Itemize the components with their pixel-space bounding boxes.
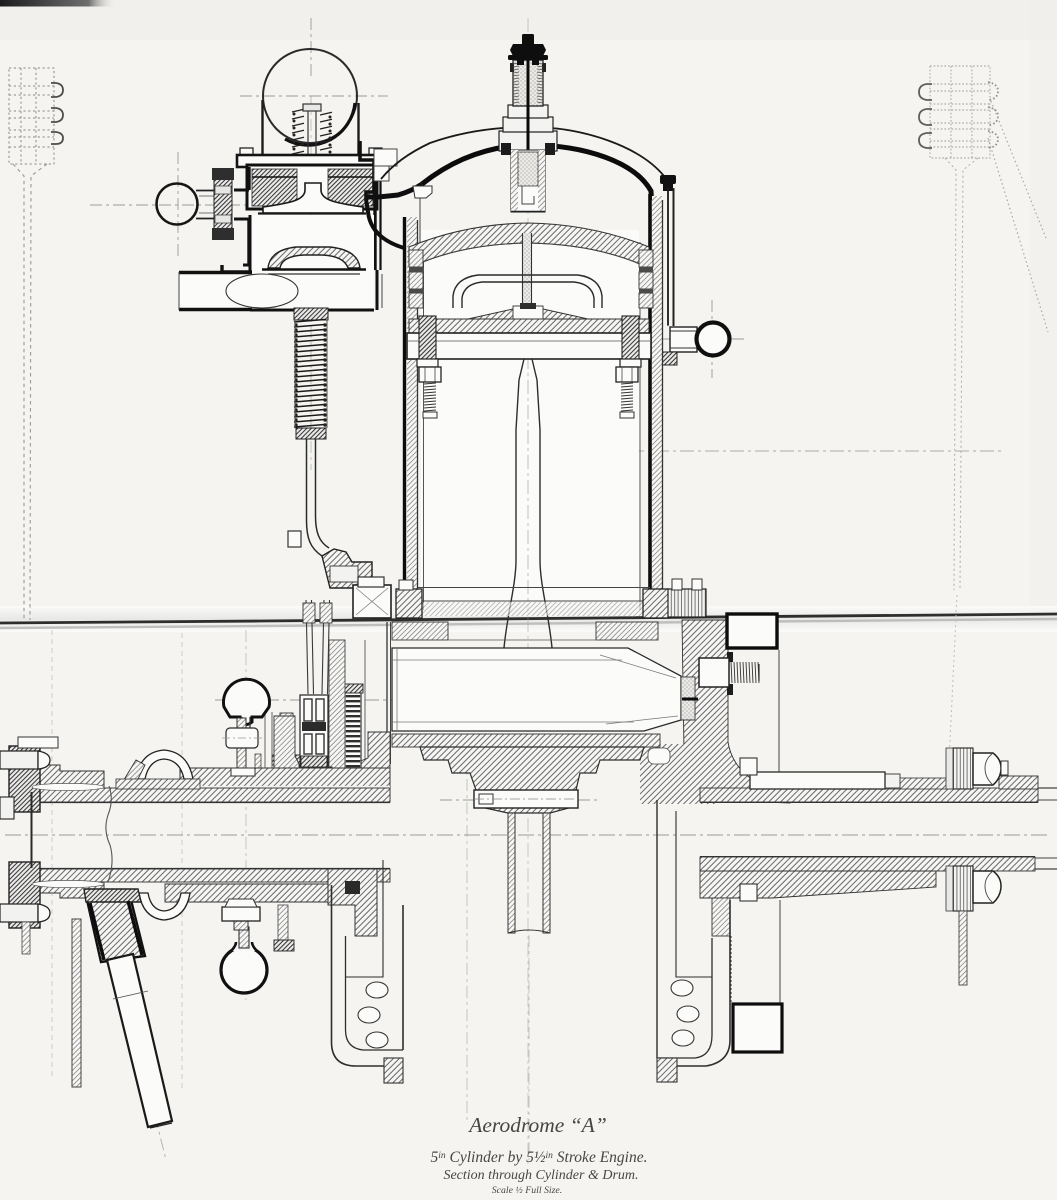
svg-text:Section through Cylinder & Dru: Section through Cylinder & Drum. [443, 1168, 638, 1183]
svg-text:Scale ½ Full Size.: Scale ½ Full Size. [492, 1185, 562, 1196]
svg-text:Aerodrome “A”: Aerodrome “A” [467, 1113, 607, 1137]
svg-text:5in Cylinder by 5½in Stroke En: 5in Cylinder by 5½in Stroke Engine. [431, 1149, 648, 1166]
